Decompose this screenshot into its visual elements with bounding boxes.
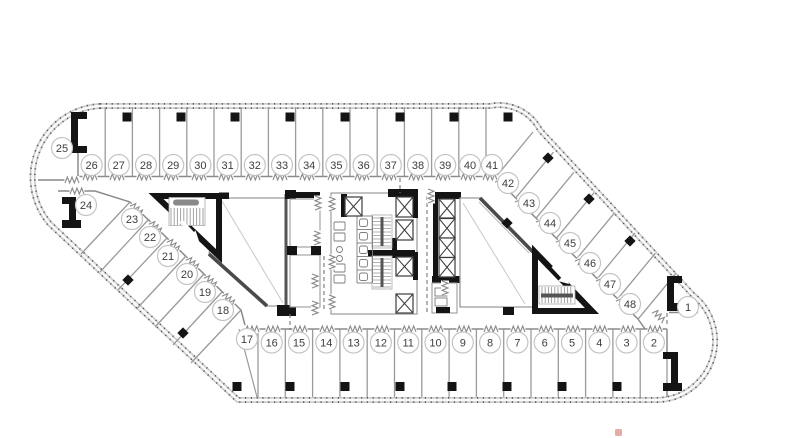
unit-label-number: 40 xyxy=(464,160,476,172)
unit-label: 27 xyxy=(108,155,129,176)
unit-label-number: 37 xyxy=(385,160,397,172)
unit-label-number: 15 xyxy=(293,338,305,350)
unit-label: 2 xyxy=(643,332,664,353)
wall-block xyxy=(503,307,514,315)
unit-label: 1 xyxy=(678,297,699,318)
unit-label: 7 xyxy=(507,332,528,353)
column-marker xyxy=(503,382,512,391)
unit-label-number: 11 xyxy=(402,338,413,350)
unit-label: 3 xyxy=(616,332,637,353)
unit-label-number: 9 xyxy=(460,338,466,350)
unit-label-number: 23 xyxy=(126,214,138,226)
unit-label: 25 xyxy=(52,138,73,159)
right-lobby xyxy=(460,198,533,315)
unit-label: 16 xyxy=(261,332,282,353)
unit-label-number: 46 xyxy=(584,258,596,270)
door-symbol xyxy=(311,274,319,289)
stall-divider xyxy=(577,213,615,259)
unit-label: 38 xyxy=(408,155,429,176)
watermark-mark xyxy=(615,429,622,436)
unit-label-number: 27 xyxy=(113,160,125,172)
unit-label: 29 xyxy=(163,155,184,176)
unit-label-number: 3 xyxy=(624,338,630,350)
floor-plan-svg: 1234567891011121314151617181920212223242… xyxy=(0,0,800,438)
unit-label: 15 xyxy=(289,332,310,353)
unit-label-number: 43 xyxy=(523,198,535,210)
unit-label-number: 34 xyxy=(303,160,315,172)
elevator-icon xyxy=(439,219,455,239)
unit-label: 9 xyxy=(452,332,473,353)
diamond-column-marker xyxy=(624,235,635,246)
elevator-icon xyxy=(396,257,413,276)
unit-label-number: 39 xyxy=(439,160,451,172)
unit-label-number: 7 xyxy=(514,338,520,350)
unit-label: 23 xyxy=(122,209,143,230)
column-marker xyxy=(504,113,513,122)
unit-label: 31 xyxy=(217,155,238,176)
stair-icon xyxy=(539,286,575,304)
unit-label: 33 xyxy=(272,155,293,176)
unit-label: 21 xyxy=(158,246,179,267)
unit-label: 22 xyxy=(140,227,161,248)
unit-label: 43 xyxy=(519,193,540,214)
unit-label: 44 xyxy=(540,213,561,234)
stair-icon xyxy=(372,256,392,289)
unit-label-number: 12 xyxy=(375,338,387,350)
unit-label: 6 xyxy=(534,332,555,353)
unit-label-number: 4 xyxy=(596,338,602,350)
unit-label: 10 xyxy=(425,332,446,353)
unit-label: 35 xyxy=(326,155,347,176)
unit-label-number: 8 xyxy=(487,338,493,350)
stair-icon xyxy=(169,198,205,226)
unit-label-number: 28 xyxy=(140,160,152,172)
elevator-icon xyxy=(396,197,413,217)
door-symbol xyxy=(328,295,336,310)
unit-label-number: 14 xyxy=(320,338,332,350)
unit-label-number: 25 xyxy=(56,143,68,155)
door-symbol xyxy=(651,308,667,324)
stair-icon xyxy=(372,215,392,248)
column-marker xyxy=(341,382,350,391)
unit-label-number: 20 xyxy=(181,269,193,281)
unit-label-number: 47 xyxy=(604,279,616,291)
column-marker xyxy=(123,113,132,122)
unit-label: 13 xyxy=(343,332,364,353)
column-marker xyxy=(613,382,622,391)
unit-label: 36 xyxy=(353,155,374,176)
unit-label-number: 18 xyxy=(217,305,229,317)
door-symbol xyxy=(313,231,321,246)
unit-label: 11 xyxy=(398,332,419,353)
unit-label: 19 xyxy=(195,282,216,303)
door-symbol xyxy=(328,197,336,212)
unit-label: 8 xyxy=(480,332,501,353)
unit-label-number: 22 xyxy=(144,232,156,244)
unit-label-number: 21 xyxy=(162,251,174,263)
door-symbol xyxy=(441,281,449,296)
door-symbol xyxy=(328,255,336,270)
unit-label-number: 45 xyxy=(564,238,576,250)
column-marker xyxy=(448,382,457,391)
unit-label: 17 xyxy=(237,329,258,350)
elevator-icon xyxy=(345,197,362,216)
unit-label: 47 xyxy=(600,274,621,295)
column-marker xyxy=(286,113,295,122)
unit-label-number: 38 xyxy=(412,160,424,172)
unit-label-number: 48 xyxy=(624,299,636,311)
unit-label: 48 xyxy=(620,294,641,315)
door-symbol xyxy=(427,189,435,204)
bracket-unit-2 xyxy=(663,352,682,391)
column-marker xyxy=(450,113,459,122)
unit-label-number: 24 xyxy=(80,200,92,212)
unit-label: 32 xyxy=(244,155,265,176)
unit-label-number: 32 xyxy=(249,160,261,172)
elevator-icon xyxy=(439,199,455,218)
door-symbol xyxy=(311,301,319,316)
door-symbol xyxy=(314,196,322,211)
column-marker xyxy=(231,113,240,122)
stall-divider xyxy=(536,172,574,218)
unit-label: 45 xyxy=(560,233,581,254)
unit-label-number: 16 xyxy=(266,338,278,350)
unit-label: 39 xyxy=(435,155,456,176)
unit-label-number: 17 xyxy=(241,334,253,346)
unit-label-number: 19 xyxy=(199,287,211,299)
unit-label-number: 42 xyxy=(502,178,514,190)
elevator-icon xyxy=(396,294,413,313)
unit-label: 20 xyxy=(177,264,198,285)
unit-label-number: 29 xyxy=(167,160,179,172)
unit-label: 42 xyxy=(498,173,519,194)
unit-label-number: 26 xyxy=(85,160,97,172)
door-symbol xyxy=(65,176,80,184)
column-marker xyxy=(558,382,567,391)
unit-label: 34 xyxy=(299,155,320,176)
column-marker xyxy=(396,382,405,391)
column-marker xyxy=(286,382,295,391)
unit-label-number: 10 xyxy=(429,338,441,350)
unit-label-number: 2 xyxy=(651,338,657,350)
bracket-unit-25 xyxy=(71,112,87,153)
unit-label: 26 xyxy=(81,155,102,176)
unit-label-number: 41 xyxy=(486,160,498,172)
unit-label: 28 xyxy=(136,155,157,176)
unit-label-number: 13 xyxy=(347,338,359,350)
unit-label-number: 30 xyxy=(194,160,206,172)
unit-label-number: 31 xyxy=(221,160,233,172)
unit-label: 40 xyxy=(460,155,481,176)
unit-label: 12 xyxy=(370,332,391,353)
unit-label: 5 xyxy=(562,332,583,353)
unit-label: 41 xyxy=(482,155,503,176)
unit-label: 37 xyxy=(380,155,401,176)
stall-divider xyxy=(617,253,655,299)
column-marker xyxy=(177,113,186,122)
unit-label-number: 44 xyxy=(544,218,556,230)
column-marker xyxy=(233,382,242,391)
unit-label-number: 5 xyxy=(569,338,575,350)
column-marker xyxy=(341,113,350,122)
unit-label-number: 1 xyxy=(685,302,691,314)
elevator-icon xyxy=(439,258,455,278)
unit-label: 30 xyxy=(190,155,211,176)
unit-label: 46 xyxy=(580,253,601,274)
unit-label: 4 xyxy=(589,332,610,353)
elevator-icon xyxy=(396,220,413,240)
column-marker xyxy=(396,113,405,122)
unit-label-number: 35 xyxy=(330,160,342,172)
unit-label: 14 xyxy=(316,332,337,353)
unit-label-number: 6 xyxy=(542,338,548,350)
unit-label-number: 33 xyxy=(276,160,288,172)
floor-plan-image: 1234567891011121314151617181920212223242… xyxy=(0,0,800,438)
unit-label: 18 xyxy=(213,300,234,321)
door-symbol xyxy=(70,187,85,195)
elevator-icon xyxy=(439,238,455,258)
unit-label: 24 xyxy=(76,195,97,216)
unit-label-number: 36 xyxy=(357,160,369,172)
